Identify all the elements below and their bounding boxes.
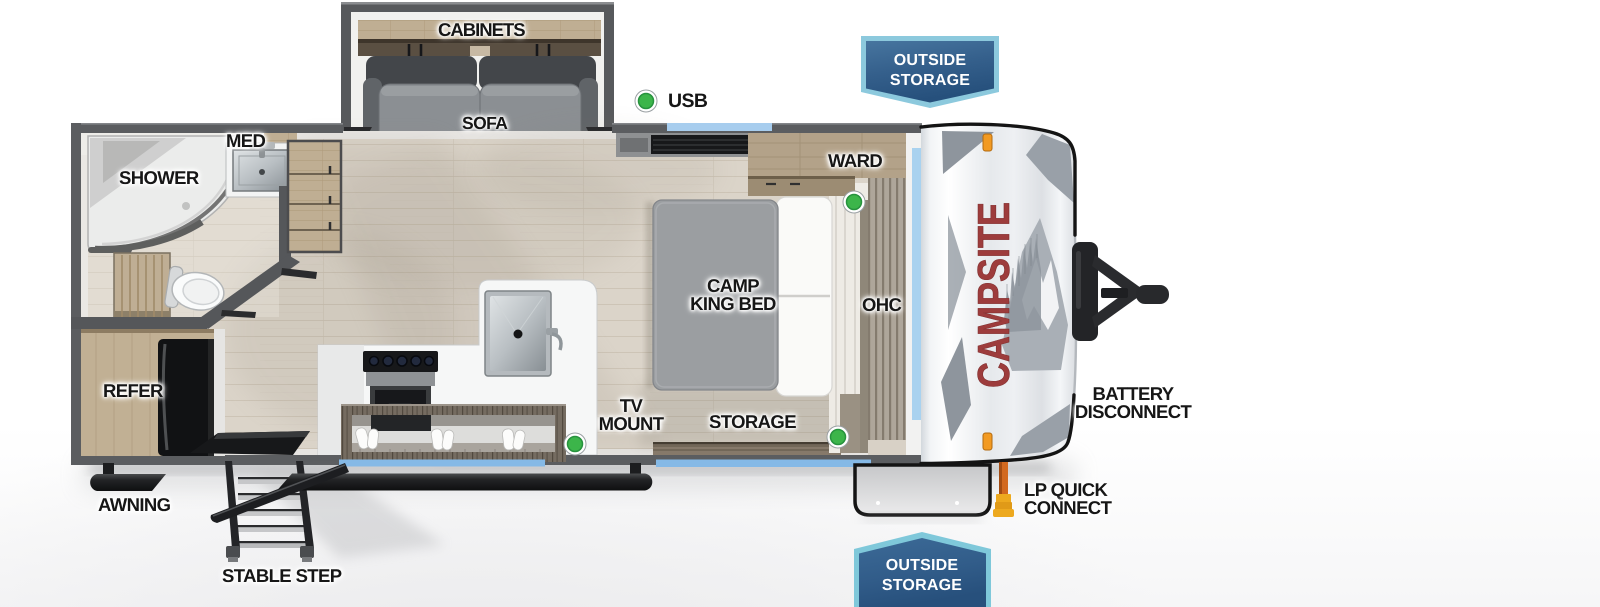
svg-text:CAMPSITE: CAMPSITE bbox=[968, 202, 1019, 388]
